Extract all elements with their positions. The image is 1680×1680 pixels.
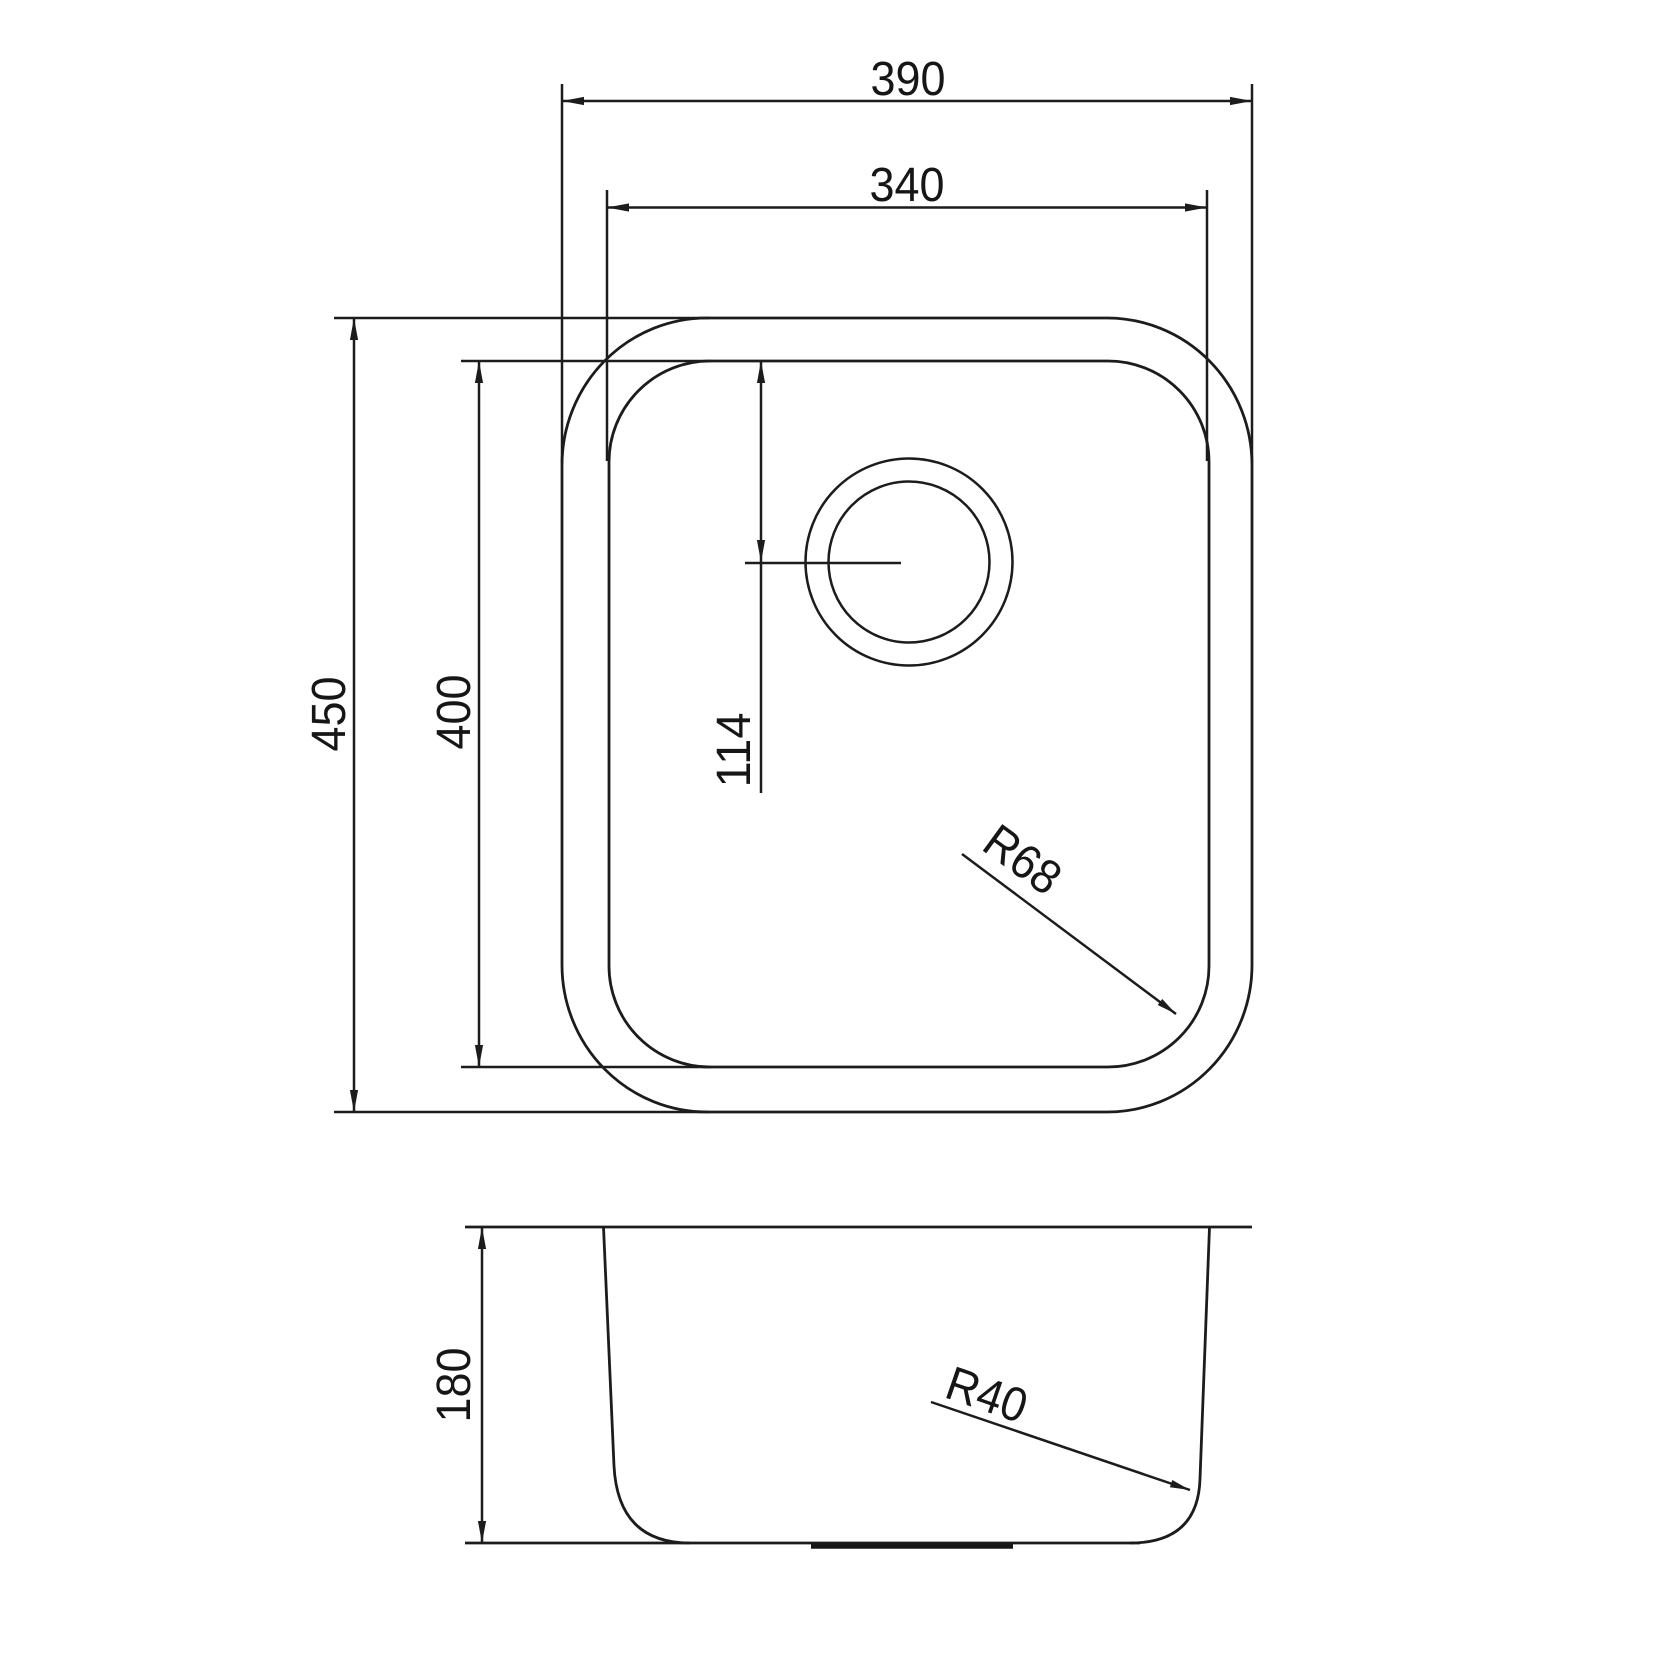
svg-text:114: 114: [708, 713, 761, 788]
svg-text:180: 180: [428, 1348, 481, 1423]
svg-text:390: 390: [871, 53, 946, 106]
svg-text:450: 450: [303, 677, 356, 752]
svg-text:340: 340: [870, 159, 945, 212]
svg-text:400: 400: [428, 675, 481, 750]
